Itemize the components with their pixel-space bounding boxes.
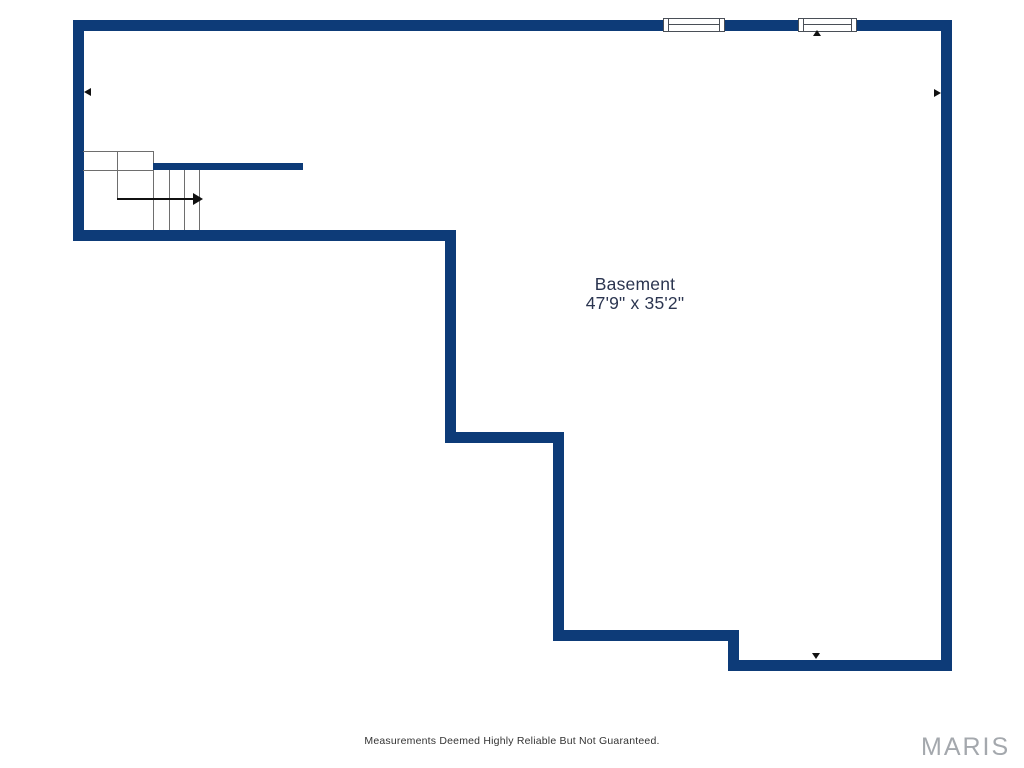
window-glass-line bbox=[669, 24, 719, 25]
stair-landing-bottom-line bbox=[83, 170, 154, 171]
wall-upper-section-bottom bbox=[73, 230, 456, 241]
wall-step2-horizontal bbox=[553, 630, 739, 641]
left-wall-marker-icon bbox=[84, 88, 91, 96]
wall-step1-vertical bbox=[445, 230, 456, 443]
room-label: Basement 47'9" x 35'2" bbox=[525, 275, 745, 312]
wall-right bbox=[941, 20, 952, 671]
top-wall-marker-icon bbox=[813, 30, 821, 36]
floorplan-page: Basement 47'9" x 35'2" Measurements Deem… bbox=[0, 0, 1024, 768]
room-name: Basement bbox=[525, 275, 745, 293]
room-dimensions: 47'9" x 35'2" bbox=[525, 294, 745, 312]
window-frame-cap bbox=[803, 19, 804, 31]
window-frame-cap bbox=[851, 19, 852, 31]
right-wall-marker-icon bbox=[934, 89, 941, 97]
wall-step2-vertical bbox=[553, 432, 564, 641]
bottom-wall-marker-icon bbox=[812, 653, 820, 659]
stair-direction-arrow-icon bbox=[193, 193, 203, 205]
wall-step1-horizontal bbox=[445, 432, 564, 443]
wall-bottom bbox=[728, 660, 952, 671]
window-icon-2 bbox=[798, 18, 857, 32]
window-frame-cap bbox=[668, 19, 669, 31]
wall-left bbox=[73, 20, 84, 241]
stair-landing-top-line bbox=[83, 151, 154, 152]
window-glass-line bbox=[804, 24, 851, 25]
stair-tread-line bbox=[169, 170, 170, 230]
maris-watermark: MARIS bbox=[921, 733, 1010, 762]
window-frame-cap bbox=[719, 19, 720, 31]
stair-half-wall bbox=[153, 163, 303, 170]
stair-landing-divider bbox=[117, 151, 118, 199]
stair-tread-line bbox=[184, 170, 185, 230]
stair-direction-arrow-line bbox=[117, 198, 194, 200]
disclaimer-text: Measurements Deemed Highly Reliable But … bbox=[0, 735, 1024, 747]
window-icon-1 bbox=[663, 18, 725, 32]
